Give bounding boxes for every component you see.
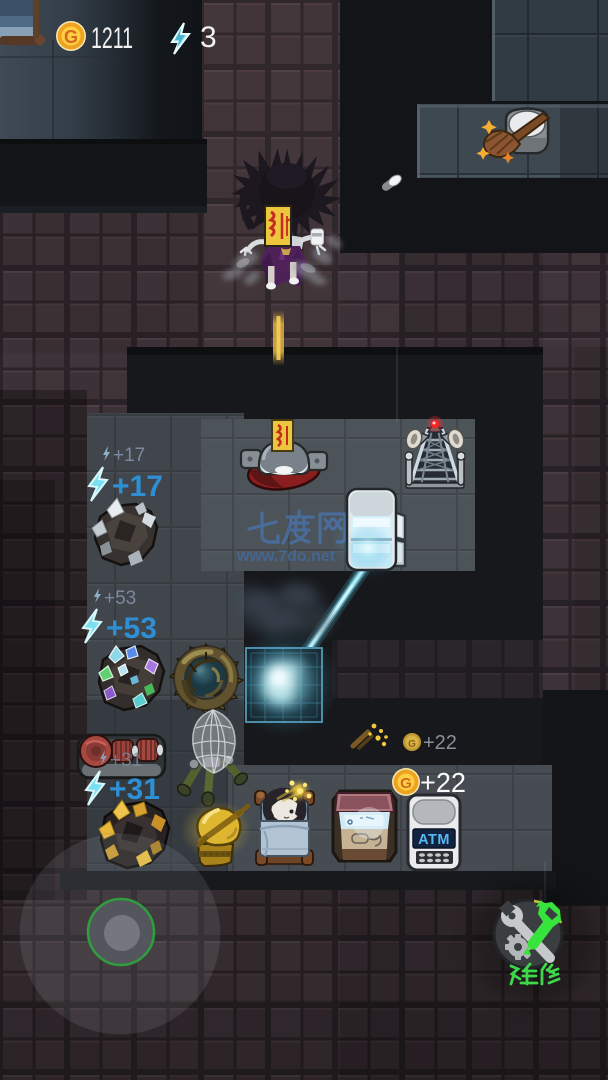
svg-text:G: G [408, 739, 416, 750]
svg-text:+22: +22 [420, 767, 466, 798]
svg-text:+17: +17 [112, 470, 163, 503]
svg-text:www.7do.net: www.7do.net [236, 548, 336, 565]
svg-text:1211: 1211 [91, 22, 133, 55]
svg-text:G: G [400, 775, 412, 792]
svg-text:+53: +53 [106, 612, 157, 645]
svg-text:+31: +31 [109, 773, 160, 806]
svg-text:3: 3 [200, 21, 217, 54]
svg-text:ATM: ATM [418, 832, 450, 848]
svg-text:+22: +22 [423, 732, 457, 754]
svg-text:+31: +31 [110, 750, 142, 771]
svg-text:+17: +17 [113, 445, 145, 466]
svg-text:+53: +53 [104, 588, 136, 609]
svg-text:G: G [64, 27, 78, 47]
